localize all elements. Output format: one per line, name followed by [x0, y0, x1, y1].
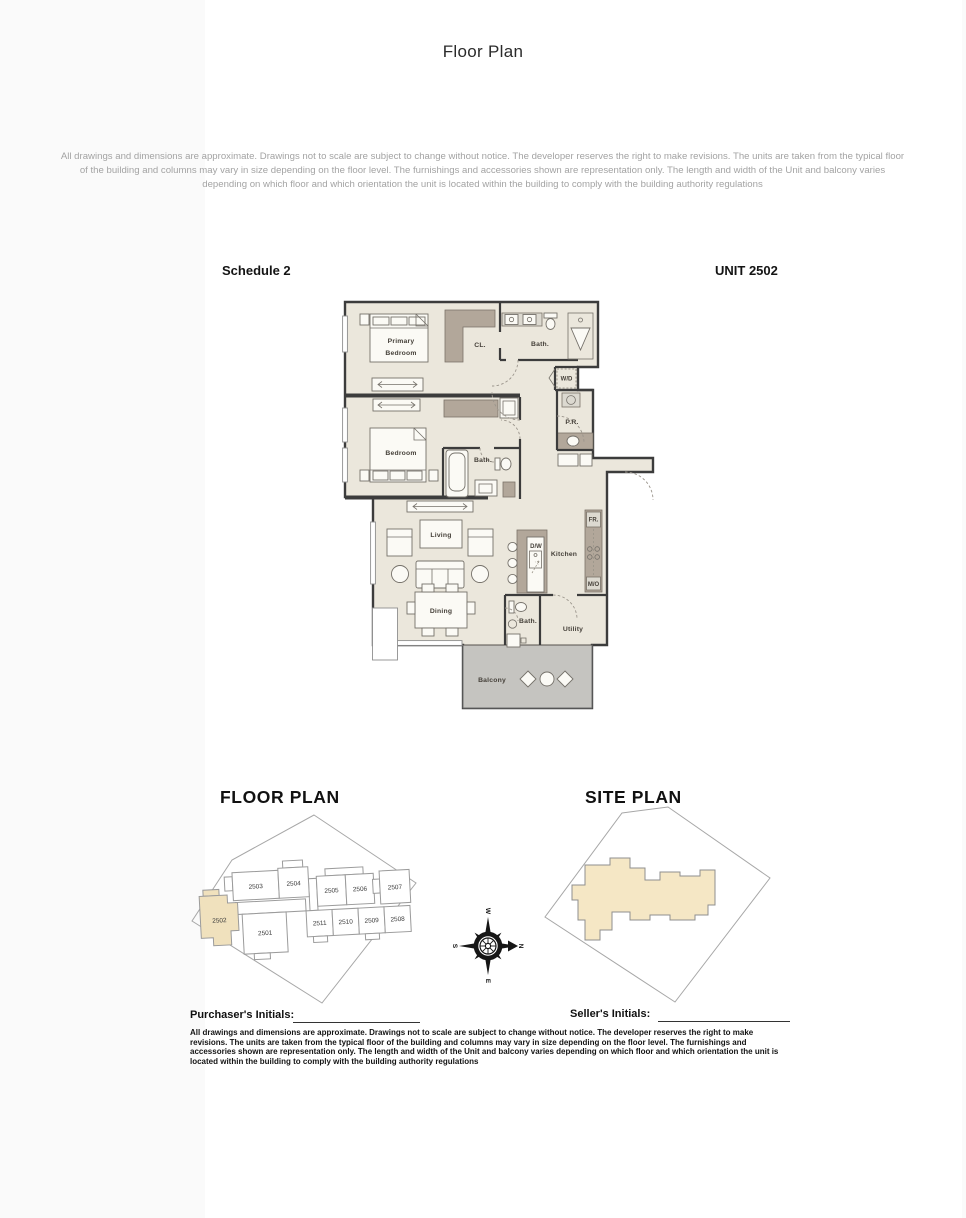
- unit-2511-label: 2511: [313, 920, 328, 928]
- compass-star: [459, 917, 518, 975]
- label-bath2: Bath.: [474, 457, 492, 464]
- unit-2506-label: 2506: [353, 886, 368, 894]
- label-bath3: Bath.: [519, 618, 537, 625]
- label-bedroom2: Bedroom: [385, 450, 416, 457]
- seller-initials-label: Seller's Initials:: [570, 1008, 650, 1020]
- wall-bedroom-divider: [345, 394, 520, 398]
- label-closet: CL.: [474, 342, 486, 349]
- label-utility: Utility: [563, 626, 583, 633]
- label-pr: P.R.: [565, 419, 578, 426]
- purchaser-initials-line: [293, 1021, 420, 1023]
- unit-2507-label: 2507: [388, 884, 403, 892]
- label-primary-bedroom-1: Primary: [388, 338, 415, 345]
- label-fr: FR.: [589, 518, 599, 524]
- bedroom2-wardrobe: [373, 399, 420, 411]
- unit-2509-label: 2509: [364, 917, 379, 925]
- unit-2503-label: 2503: [248, 883, 263, 891]
- page-margin-right: [962, 0, 966, 1218]
- label-mo: M/O: [588, 582, 600, 588]
- unit-number-label: UNIT 2502: [715, 263, 778, 278]
- unit-2502-label: 2502: [212, 917, 227, 925]
- unit-2508-label: 2508: [390, 916, 405, 924]
- label-primary-bedroom-2: Bedroom: [385, 350, 416, 357]
- planter-ledge: [373, 608, 398, 660]
- label-wd: W/D: [561, 377, 573, 383]
- page-title: Floor Plan: [0, 42, 966, 62]
- label-dining: Dining: [430, 608, 452, 615]
- unit-2510-label: 2510: [338, 918, 353, 926]
- site-plan-map: [540, 798, 802, 1013]
- label-balcony: Balcony: [478, 677, 506, 684]
- purchaser-initials-label: Purchaser's Initials:: [190, 1009, 294, 1021]
- label-bath-main: Bath.: [531, 341, 549, 348]
- document-page: Floor Plan All drawings and dimensions a…: [0, 0, 966, 1218]
- compass-bottom-label: E: [484, 979, 491, 984]
- unit-2501-label: 2501: [258, 930, 273, 938]
- hall-closet: [444, 400, 498, 417]
- unit-2505-label: 2505: [324, 887, 339, 895]
- building-footprint: [572, 858, 715, 940]
- unit-floor-plan: Primary Bedroom CL. Bath. W/D P.R. Bedro…: [340, 290, 670, 720]
- disclaimer-top: All drawings and dimensions are approxim…: [60, 150, 905, 193]
- label-kitchen: Kitchen: [551, 551, 577, 558]
- compass-rose: W N E S: [452, 902, 524, 986]
- compass-right-label: N: [517, 944, 524, 949]
- primary-wardrobe: [372, 378, 423, 391]
- unit-2504-label: 2504: [286, 880, 301, 888]
- label-dw: D/W: [530, 544, 542, 550]
- compass-top-label: W: [484, 908, 491, 915]
- compass-left-label: S: [452, 944, 458, 949]
- disclaimer-bottom: All drawings and dimensions are approxim…: [190, 1028, 788, 1066]
- floor-plan-keyplan: 2503 2504 2505 2506 2507 2502 2501 2511 …: [188, 805, 420, 1010]
- balcony-furniture: [520, 671, 573, 687]
- bath2-cabinet: [503, 482, 515, 497]
- label-living: Living: [430, 532, 451, 539]
- schedule-label: Schedule 2: [222, 263, 291, 278]
- seller-initials-line: [658, 1020, 790, 1022]
